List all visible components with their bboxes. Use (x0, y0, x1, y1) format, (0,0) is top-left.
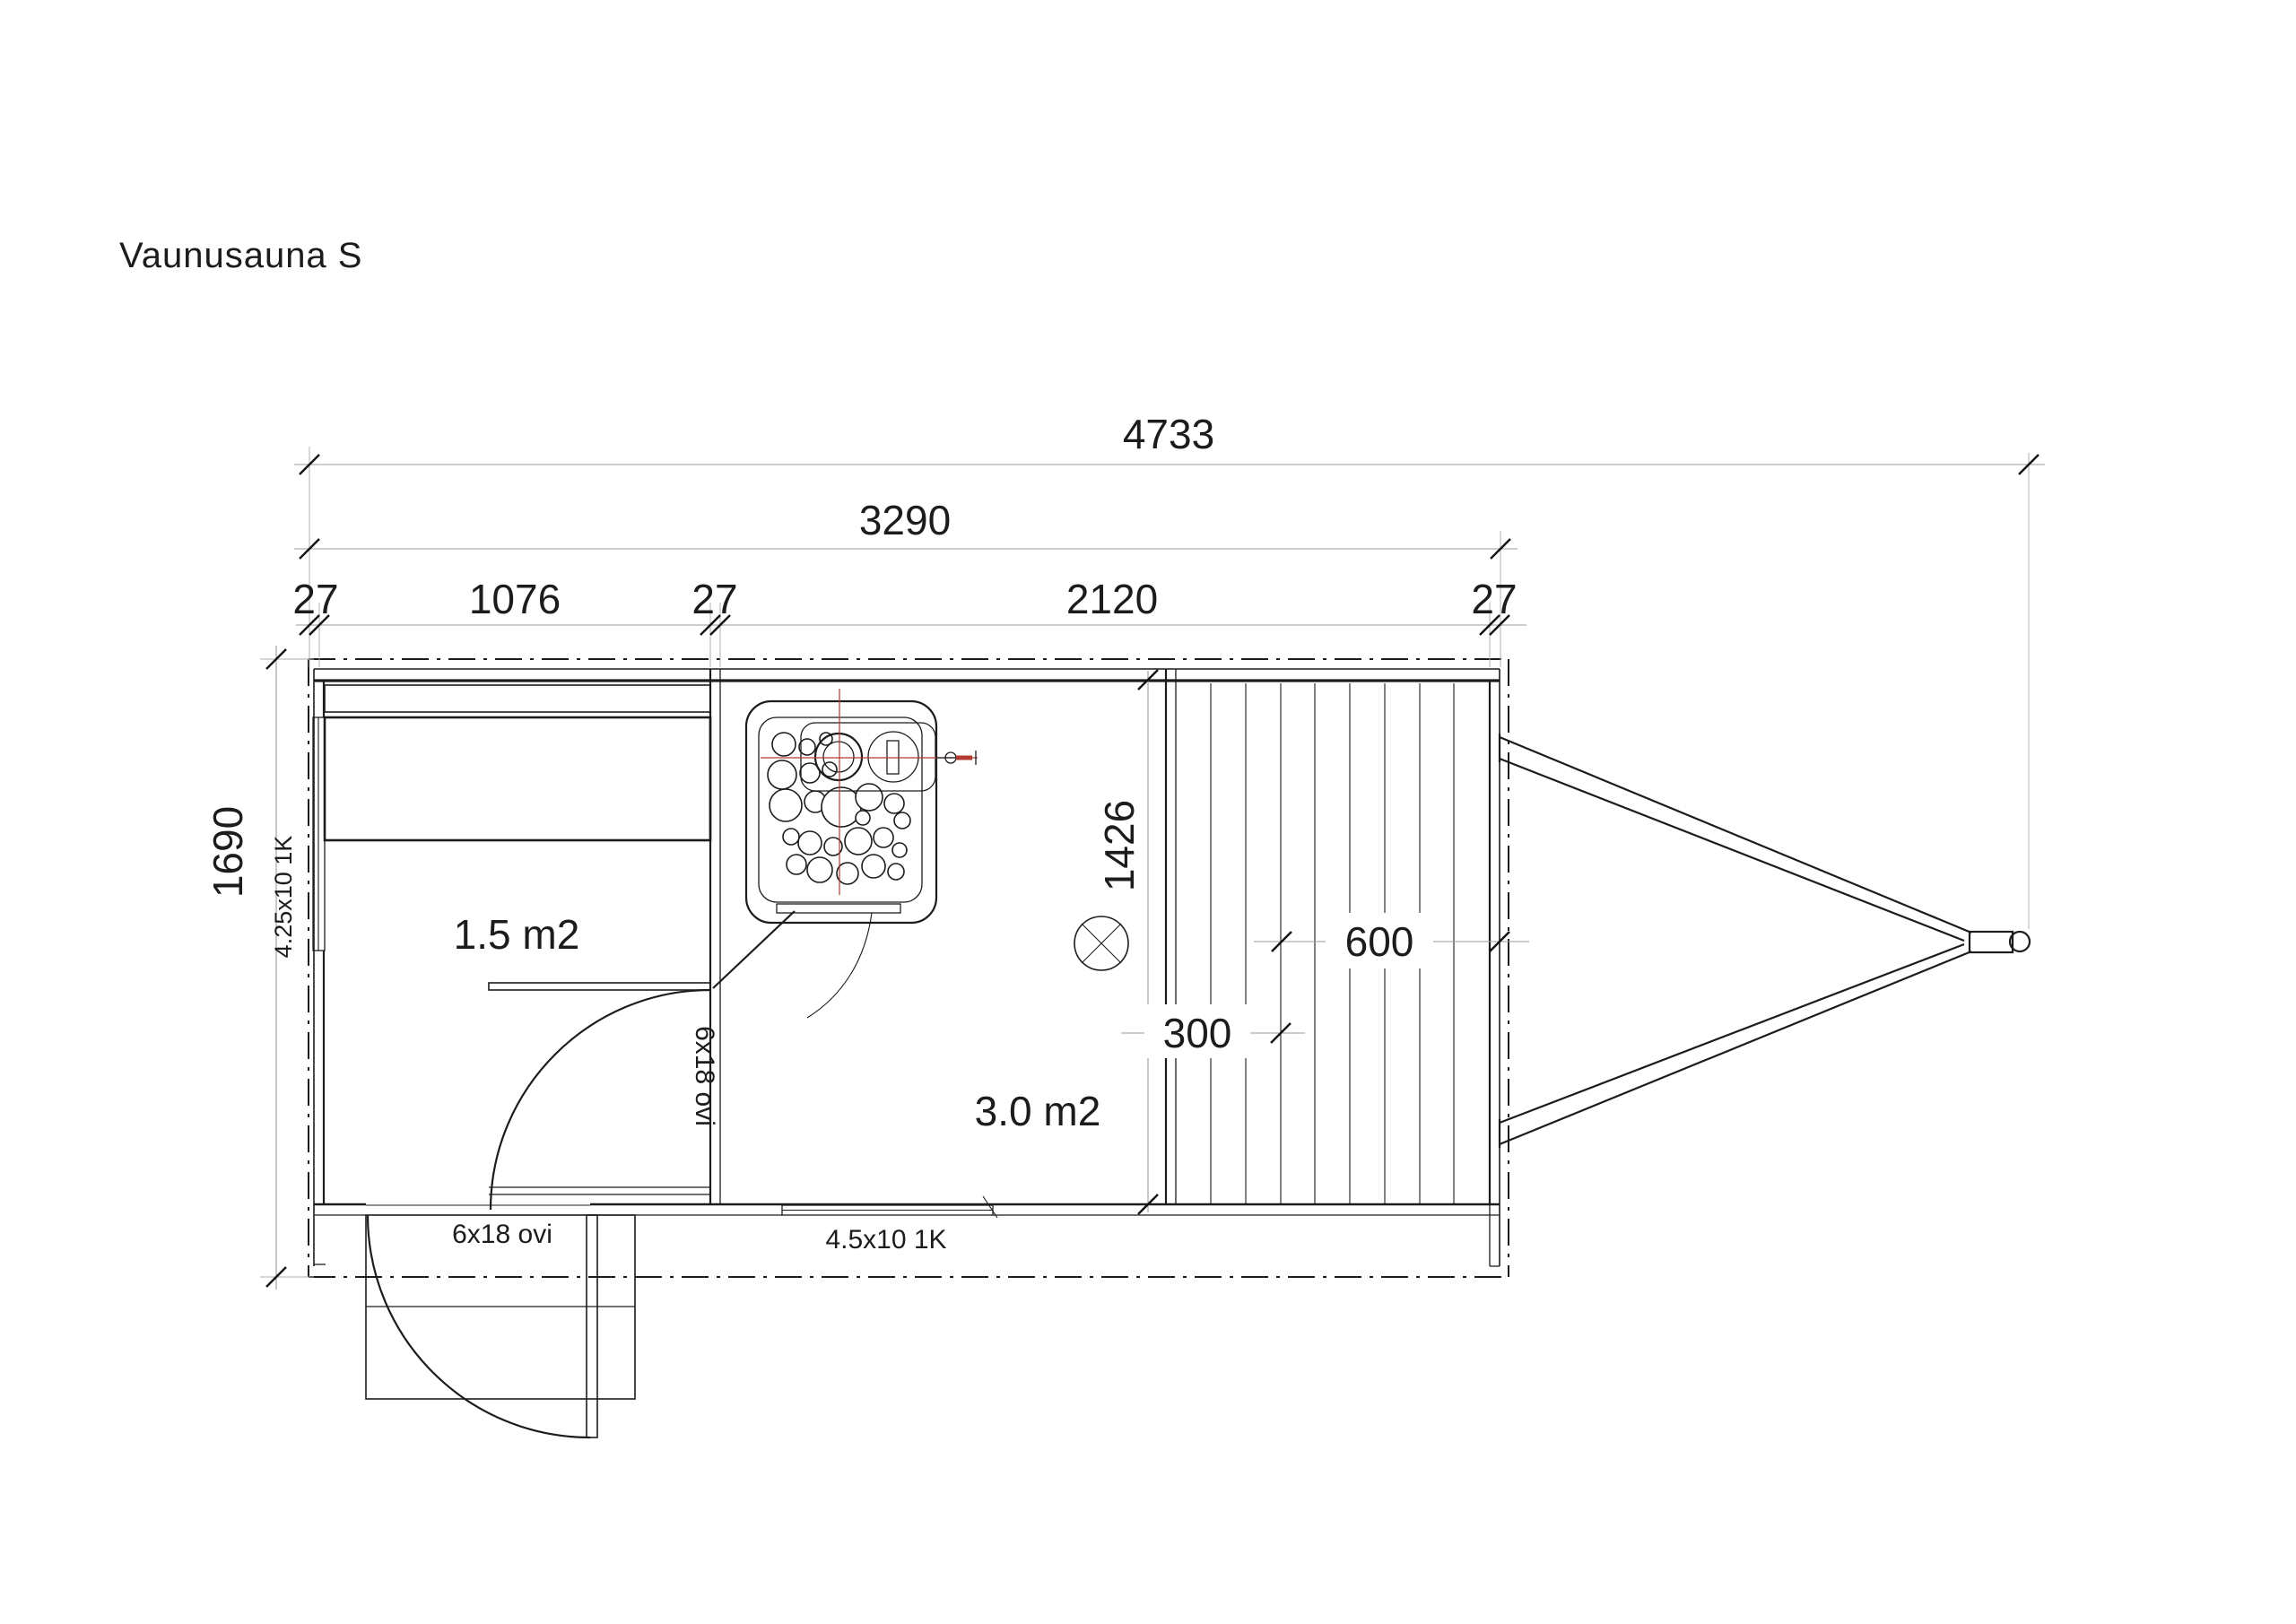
trailer-hitch (1500, 734, 2030, 1148)
dressing-room-area-label: 1.5 m2 (454, 911, 580, 958)
dim-27-mid-label: 27 (691, 576, 737, 622)
interior-door-label: 6x18 ovi (690, 1026, 719, 1126)
stove-water-tank (801, 723, 935, 791)
dim-600-label: 600 (1345, 918, 1414, 965)
sauna-stove (713, 689, 978, 1018)
building-walls (313, 669, 1500, 1266)
bottom-window (782, 1196, 997, 1218)
left-window-label: 4.25x10 1K (270, 836, 297, 959)
interior-door (489, 983, 710, 1210)
dim-300-label: 300 (1163, 1010, 1232, 1056)
dim-1426-label: 1426 (1096, 800, 1143, 891)
ceiling-lamp-symbol (1074, 916, 1128, 970)
stove-firebox-door (713, 904, 900, 1018)
dim-27-right-label: 27 (1471, 576, 1517, 622)
sauna-room-area-label: 3.0 m2 (975, 1088, 1101, 1134)
dim-3290-label: 3290 (859, 497, 951, 543)
left-window (313, 717, 325, 951)
entrance-door-label: 6x18 ovi (452, 1220, 552, 1249)
drawing-page: Vaunusauna S 4733 3290 27 1076 27 2120 2… (0, 0, 2296, 1624)
floor-plan-drawing: Vaunusauna S 4733 3290 27 1076 27 2120 2… (0, 0, 2296, 1624)
dim-1690-label: 1690 (204, 806, 251, 898)
dim-1076-label: 1076 (469, 576, 561, 622)
dim-2120-label: 2120 (1066, 576, 1158, 622)
drawing-title: Vaunusauna S (119, 236, 362, 275)
dim-27-left-label: 27 (292, 576, 338, 622)
dim-4733-label: 4733 (1123, 411, 1214, 457)
bottom-window-label: 4.5x10 1K (825, 1225, 946, 1255)
